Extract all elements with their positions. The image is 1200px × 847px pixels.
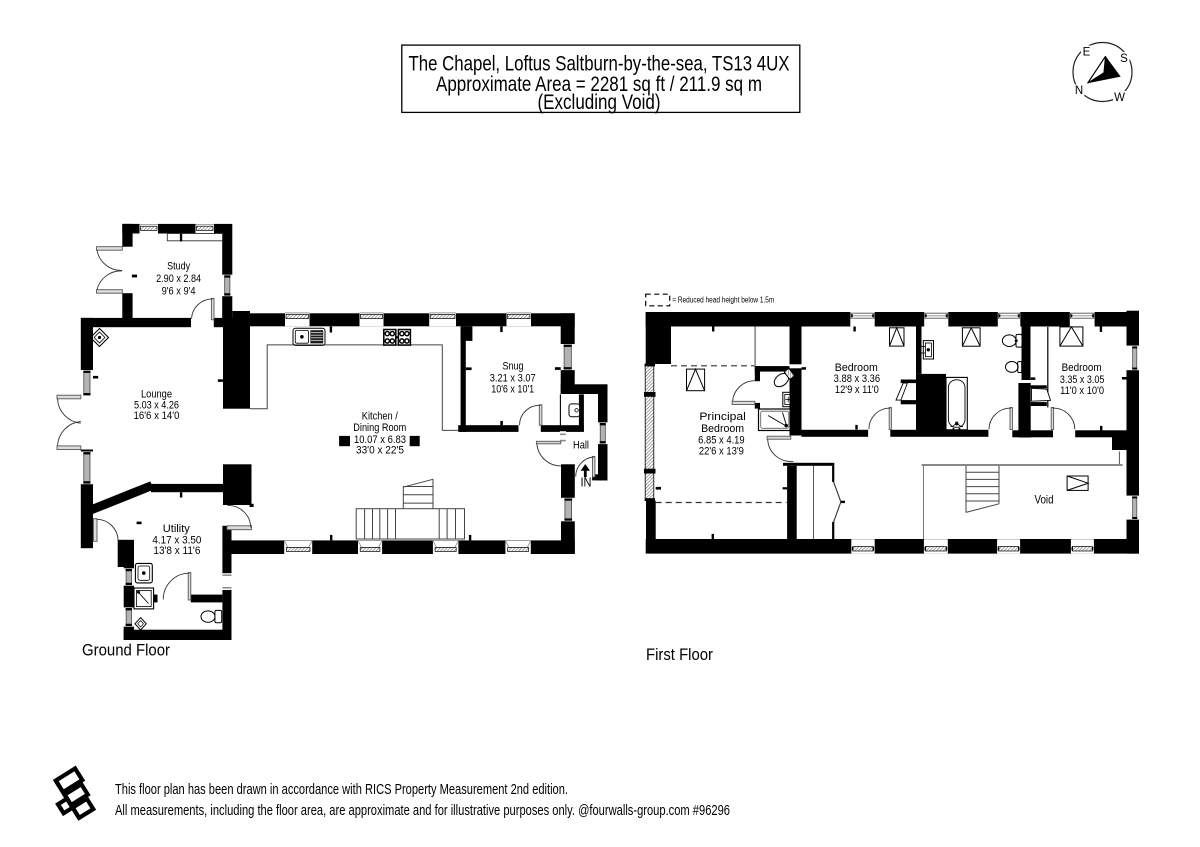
svg-text:10'6 x 10'1: 10'6 x 10'1 <box>491 384 534 396</box>
svg-text:(Excluding Void): (Excluding Void) <box>538 91 661 114</box>
svg-text:IN: IN <box>581 475 592 490</box>
svg-text:22'6 x 13'9: 22'6 x 13'9 <box>699 446 744 458</box>
svg-text:Ground Floor: Ground Floor <box>82 642 170 660</box>
svg-text:The Chapel, Loftus Saltburn-by: The Chapel, Loftus Saltburn-by-the-sea, … <box>409 53 790 76</box>
svg-text:N: N <box>1075 85 1083 97</box>
svg-text:Principal: Principal <box>699 411 746 423</box>
svg-text:Kitchen /: Kitchen / <box>362 411 399 423</box>
svg-text:W: W <box>1114 92 1125 104</box>
svg-text:11'0 x 10'0: 11'0 x 10'0 <box>1060 385 1104 397</box>
svg-text:All measurements, including th: All measurements, including the floor ar… <box>115 803 730 819</box>
svg-text:12'9 x 11'0: 12'9 x 11'0 <box>835 384 879 396</box>
svg-text:Utility: Utility <box>163 523 190 535</box>
svg-text:Bedroom: Bedroom <box>701 423 744 435</box>
svg-text:Snug: Snug <box>503 361 524 373</box>
svg-text:Hall: Hall <box>573 439 589 451</box>
svg-text:2.90 x 2.84: 2.90 x 2.84 <box>156 273 201 285</box>
svg-text:9'6 x 9'4: 9'6 x 9'4 <box>162 286 196 298</box>
svg-text:33'0 x 22'5: 33'0 x 22'5 <box>356 445 404 457</box>
svg-text:Void: Void <box>1035 493 1054 507</box>
svg-text:16'6 x 14'0: 16'6 x 14'0 <box>134 410 180 422</box>
svg-text:S: S <box>1120 53 1128 65</box>
svg-text:= Reduced head height below 1.: = Reduced head height below 1.5m <box>672 296 774 305</box>
svg-text:13'8 x 11'6: 13'8 x 11'6 <box>153 545 200 557</box>
svg-text:This floor plan has been drawn: This floor plan has been drawn in accord… <box>115 782 568 798</box>
svg-text:Study: Study <box>167 261 190 273</box>
svg-text:E: E <box>1083 46 1091 58</box>
svg-text:Bedroom: Bedroom <box>1062 362 1102 374</box>
svg-text:Dining Room: Dining Room <box>353 422 406 434</box>
svg-text:First Floor: First Floor <box>646 646 713 664</box>
